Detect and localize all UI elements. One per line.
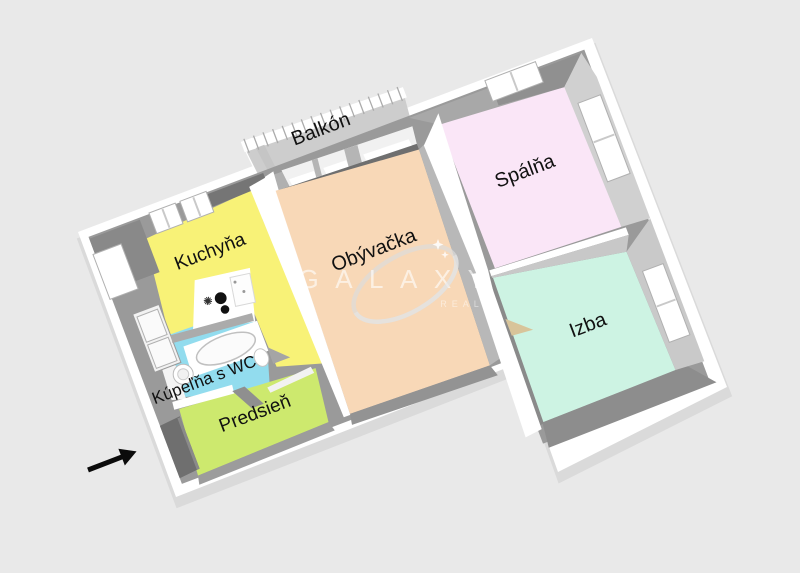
svg-text:REAL: REAL [440, 299, 484, 309]
svg-text:GALAXY: GALAXY [298, 264, 501, 294]
